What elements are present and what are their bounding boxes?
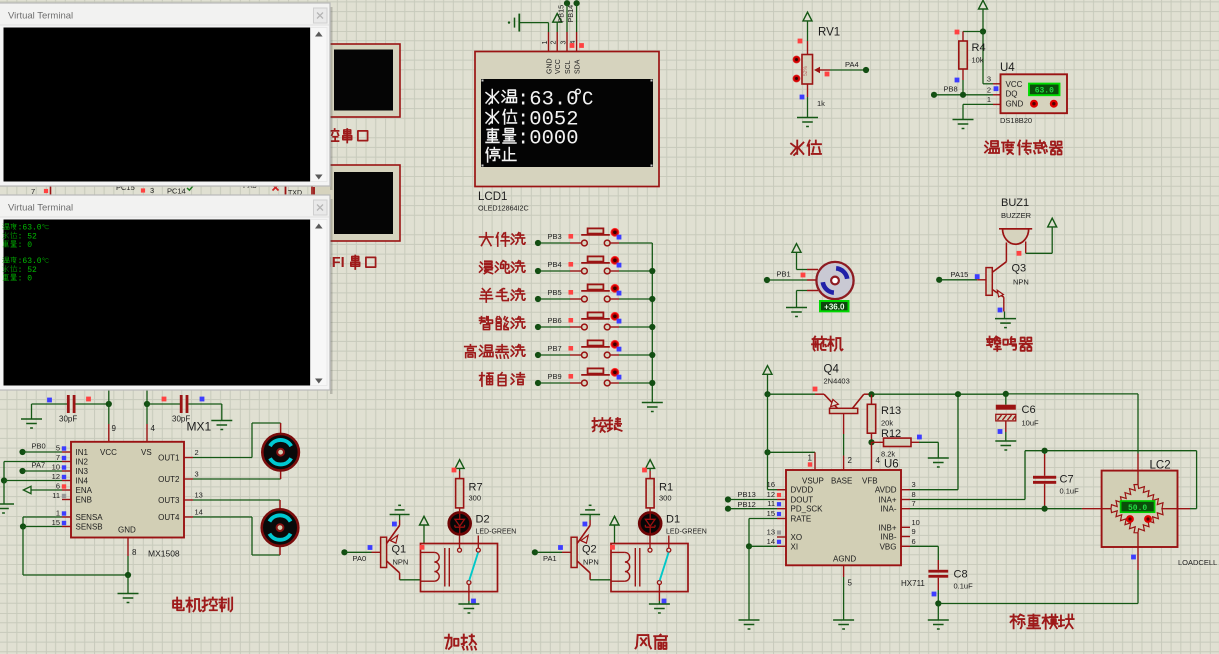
svg-text:52%: 52% bbox=[803, 65, 809, 76]
svg-text:+36.0: +36.0 bbox=[824, 302, 845, 311]
svg-text:PB9: PB9 bbox=[548, 372, 562, 381]
svg-text:8.2k: 8.2k bbox=[881, 450, 895, 459]
svg-text:SENSA: SENSA bbox=[76, 513, 104, 522]
svg-text:RV1: RV1 bbox=[818, 27, 840, 39]
svg-text:IN2: IN2 bbox=[76, 458, 89, 467]
svg-text:BASE: BASE bbox=[831, 477, 852, 486]
svg-text:7: 7 bbox=[56, 453, 60, 462]
svg-text:8: 8 bbox=[132, 548, 137, 557]
svg-text:PB4: PB4 bbox=[548, 260, 562, 269]
svg-text:7: 7 bbox=[912, 499, 916, 508]
svg-text:R7: R7 bbox=[469, 482, 483, 494]
svg-text:13: 13 bbox=[195, 491, 203, 500]
svg-text:13: 13 bbox=[767, 528, 775, 537]
svg-text:11: 11 bbox=[767, 499, 775, 508]
svg-text:VCC: VCC bbox=[1006, 80, 1023, 89]
svg-text:15: 15 bbox=[52, 518, 60, 527]
svg-text:300: 300 bbox=[659, 494, 672, 503]
svg-text:AVDD: AVDD bbox=[875, 486, 897, 495]
svg-text:U6: U6 bbox=[884, 459, 899, 471]
svg-text:PB14: PB14 bbox=[566, 5, 575, 23]
svg-text:BUZZER: BUZZER bbox=[1001, 211, 1032, 220]
svg-text:IN1: IN1 bbox=[76, 448, 89, 457]
svg-text:NPN: NPN bbox=[583, 558, 599, 567]
svg-text:1: 1 bbox=[808, 454, 813, 463]
svg-text:PA4: PA4 bbox=[845, 60, 859, 69]
svg-text:16: 16 bbox=[767, 480, 775, 489]
svg-text:2N4403: 2N4403 bbox=[824, 377, 850, 386]
svg-text:U4: U4 bbox=[1000, 62, 1015, 74]
svg-text:C8: C8 bbox=[954, 569, 968, 581]
svg-text:LED-GREEN: LED-GREEN bbox=[666, 529, 707, 536]
svg-text:MX1: MX1 bbox=[187, 420, 212, 434]
svg-text:Virtual Terminal: Virtual Terminal bbox=[8, 203, 73, 214]
svg-text:OUT4: OUT4 bbox=[158, 513, 180, 522]
svg-text:9: 9 bbox=[112, 424, 117, 433]
svg-text:SCL: SCL bbox=[565, 60, 572, 74]
svg-text:INA+: INA+ bbox=[878, 496, 896, 505]
svg-text:0.1uF: 0.1uF bbox=[954, 582, 974, 591]
svg-text:DVDD: DVDD bbox=[791, 486, 814, 495]
svg-text:VBG: VBG bbox=[880, 542, 897, 551]
svg-text:PB8: PB8 bbox=[944, 85, 958, 94]
svg-text:VFB: VFB bbox=[862, 477, 878, 486]
svg-text:PA0: PA0 bbox=[353, 554, 367, 563]
svg-text:PA15: PA15 bbox=[951, 270, 969, 279]
svg-text:4: 4 bbox=[876, 456, 881, 465]
svg-text:6: 6 bbox=[912, 537, 916, 546]
svg-text:PD_SCK: PD_SCK bbox=[791, 505, 824, 514]
svg-text:PB0: PB0 bbox=[32, 442, 46, 451]
svg-text:OUT1: OUT1 bbox=[158, 454, 180, 463]
svg-text:300: 300 bbox=[469, 494, 482, 503]
svg-text:XI: XI bbox=[791, 542, 799, 551]
svg-text:PB6: PB6 bbox=[548, 316, 562, 325]
svg-text::63.0: :63.0 bbox=[18, 257, 42, 266]
svg-text:DS18B20: DS18B20 bbox=[1000, 116, 1032, 125]
svg-text:GND: GND bbox=[118, 526, 136, 535]
svg-text:R4: R4 bbox=[972, 42, 986, 54]
svg-text:15: 15 bbox=[767, 509, 775, 518]
svg-text:VS: VS bbox=[141, 448, 152, 457]
svg-text:MX1508: MX1508 bbox=[148, 549, 180, 559]
svg-text:3: 3 bbox=[561, 41, 568, 45]
svg-text:: 0: : 0 bbox=[18, 274, 33, 283]
svg-text:1: 1 bbox=[542, 41, 549, 45]
svg-text:LCD1: LCD1 bbox=[478, 191, 507, 203]
svg-text:IN4: IN4 bbox=[76, 477, 89, 486]
svg-text:AGND: AGND bbox=[833, 555, 856, 564]
svg-text:VCC: VCC bbox=[100, 448, 117, 457]
svg-text:63.0: 63.0 bbox=[1035, 87, 1054, 96]
svg-text:PB12: PB12 bbox=[738, 500, 756, 509]
svg-text:0.1uF: 0.1uF bbox=[1060, 487, 1080, 496]
svg-text:INB-: INB- bbox=[881, 533, 897, 542]
svg-text:OUT3: OUT3 bbox=[158, 496, 180, 505]
svg-text:LOADCELL: LOADCELL bbox=[1178, 558, 1217, 567]
svg-text:Q4: Q4 bbox=[824, 364, 840, 376]
svg-text:12: 12 bbox=[767, 490, 775, 499]
svg-text:8: 8 bbox=[912, 490, 916, 499]
svg-text:1: 1 bbox=[56, 509, 60, 518]
svg-text:2: 2 bbox=[848, 456, 853, 465]
svg-text:6: 6 bbox=[56, 482, 60, 491]
svg-text:BUZ1: BUZ1 bbox=[1001, 197, 1029, 209]
svg-text:R12: R12 bbox=[881, 428, 901, 440]
svg-text:C7: C7 bbox=[1060, 474, 1074, 486]
svg-text:Q3: Q3 bbox=[1012, 263, 1027, 275]
svg-text:12: 12 bbox=[52, 472, 60, 481]
svg-text:GND: GND bbox=[547, 58, 554, 74]
svg-text:PB13: PB13 bbox=[738, 490, 756, 499]
svg-text:DOUT: DOUT bbox=[791, 496, 814, 505]
svg-text:INB+: INB+ bbox=[878, 523, 896, 532]
svg-text:5: 5 bbox=[56, 444, 60, 453]
svg-text:3: 3 bbox=[912, 480, 916, 489]
svg-text:Q2: Q2 bbox=[582, 544, 597, 556]
svg-text:30pF: 30pF bbox=[59, 415, 77, 424]
svg-text:: 0: : 0 bbox=[18, 241, 33, 250]
svg-text:2: 2 bbox=[195, 448, 199, 457]
svg-text:XO: XO bbox=[791, 533, 803, 542]
svg-text:C6: C6 bbox=[1022, 404, 1036, 416]
svg-text:LC2: LC2 bbox=[1150, 460, 1171, 472]
svg-text:Virtual Terminal: Virtual Terminal bbox=[8, 11, 73, 22]
svg-text:10: 10 bbox=[912, 518, 920, 527]
svg-text:PB5: PB5 bbox=[548, 288, 562, 297]
svg-text:R1: R1 bbox=[659, 482, 673, 494]
svg-text:4: 4 bbox=[151, 424, 156, 433]
svg-text:10: 10 bbox=[52, 463, 60, 472]
svg-text:GND: GND bbox=[1006, 99, 1024, 108]
svg-text:50.0: 50.0 bbox=[1128, 504, 1147, 513]
svg-text:D2: D2 bbox=[476, 514, 490, 526]
svg-text:ENB: ENB bbox=[76, 496, 92, 505]
svg-text:IN3: IN3 bbox=[76, 467, 89, 476]
svg-text::0000: :0000 bbox=[517, 128, 579, 151]
svg-text:C: C bbox=[582, 89, 593, 111]
svg-text:HX711: HX711 bbox=[901, 579, 925, 588]
svg-text:NPN: NPN bbox=[1013, 278, 1029, 287]
svg-text:2: 2 bbox=[987, 86, 991, 95]
svg-text:ENA: ENA bbox=[76, 486, 93, 495]
svg-text:11: 11 bbox=[52, 491, 60, 500]
svg-text:OUT2: OUT2 bbox=[158, 475, 180, 484]
svg-text:10uF: 10uF bbox=[1022, 419, 1040, 428]
svg-text:SENSB: SENSB bbox=[76, 523, 103, 532]
svg-text:OLED12864I2C: OLED12864I2C bbox=[478, 204, 529, 213]
svg-text:3: 3 bbox=[150, 186, 154, 195]
svg-text:R13: R13 bbox=[881, 405, 901, 417]
svg-text:1k: 1k bbox=[817, 99, 825, 108]
svg-text:14: 14 bbox=[767, 537, 775, 546]
svg-text:PB1: PB1 bbox=[777, 270, 791, 279]
svg-text:3: 3 bbox=[987, 75, 991, 84]
svg-text:2: 2 bbox=[551, 41, 558, 45]
svg-text:1: 1 bbox=[987, 95, 991, 104]
svg-text:PA1: PA1 bbox=[543, 554, 557, 563]
svg-text:PB7: PB7 bbox=[548, 344, 562, 353]
svg-text:14: 14 bbox=[195, 508, 203, 517]
svg-text:RATE: RATE bbox=[791, 515, 812, 524]
svg-text:VCC: VCC bbox=[555, 59, 562, 74]
svg-text:D1: D1 bbox=[666, 514, 680, 526]
svg-text:3: 3 bbox=[195, 470, 199, 479]
svg-text:PC14: PC14 bbox=[167, 187, 186, 196]
svg-text:Q1: Q1 bbox=[392, 544, 407, 556]
svg-text:LED-GREEN: LED-GREEN bbox=[476, 529, 517, 536]
svg-text:PB3: PB3 bbox=[548, 232, 562, 241]
svg-text:20k: 20k bbox=[881, 419, 893, 428]
svg-text:INA-: INA- bbox=[881, 505, 897, 514]
svg-text:SDA: SDA bbox=[575, 59, 582, 74]
svg-text:VSUP: VSUP bbox=[802, 477, 824, 486]
svg-text:NPN: NPN bbox=[393, 558, 409, 567]
svg-text:PB15: PB15 bbox=[557, 5, 566, 23]
svg-text:5: 5 bbox=[848, 579, 853, 588]
svg-text:9: 9 bbox=[912, 527, 916, 536]
svg-text:10k: 10k bbox=[972, 56, 984, 65]
svg-text:DQ: DQ bbox=[1006, 90, 1018, 99]
svg-text::63.0: :63.0 bbox=[18, 224, 42, 233]
